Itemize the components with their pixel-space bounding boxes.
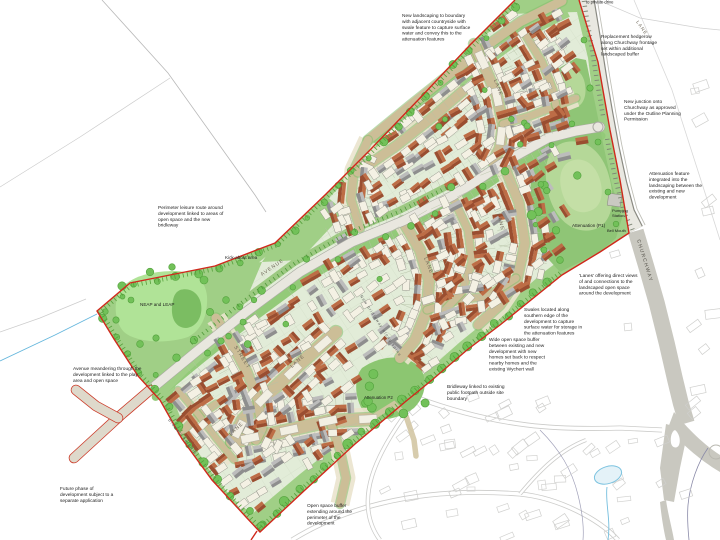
svg-text:Kick-about area: Kick-about area (225, 255, 258, 260)
svg-text:Attenuation (P1): Attenuation (P1) (572, 223, 606, 228)
svg-text:to private drive: to private drive (586, 0, 614, 5)
svg-text:'Lanes' offering direct viewso: 'Lanes' offering direct viewsof and conn… (579, 273, 638, 297)
svg-text:NEAP and LEAP: NEAP and LEAP (140, 302, 174, 307)
svg-text:Attenuation P2: Attenuation P2 (364, 395, 393, 400)
svg-text:Bell Mouth: Bell Mouth (607, 228, 626, 233)
